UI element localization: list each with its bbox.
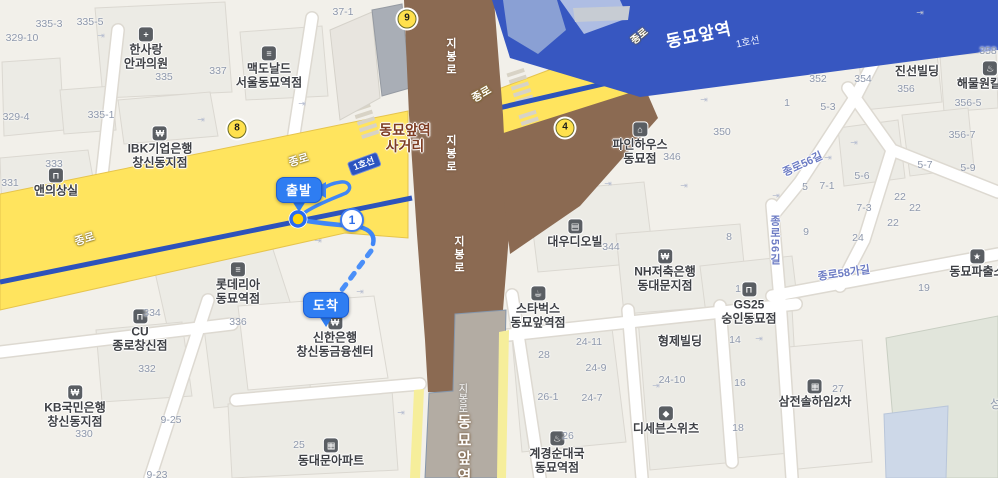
base-map-layer bbox=[0, 0, 998, 478]
subway-exit-badge-4[interactable]: 4 bbox=[556, 119, 575, 138]
route-start-pin[interactable]: 출발 bbox=[276, 177, 322, 212]
start-pin-label: 출발 bbox=[276, 177, 322, 203]
end-pin-label: 도착 bbox=[303, 292, 349, 318]
route-end-pin[interactable]: 도착 bbox=[303, 292, 349, 327]
route-waypoint-1[interactable]: 1 bbox=[340, 208, 364, 232]
building-block-blue bbox=[884, 406, 948, 478]
subway-exit-badge-8[interactable]: 8 bbox=[228, 120, 247, 139]
subway-exit-badge-9[interactable]: 9 bbox=[398, 10, 417, 29]
station-building bbox=[573, 6, 630, 22]
route-start-dot bbox=[291, 212, 305, 226]
map-canvas[interactable]: +한사랑안과의원≡맥도날드서울동묘역점⊓앤의상실₩IBK기업은행창신동지점≡롯데… bbox=[0, 0, 998, 478]
